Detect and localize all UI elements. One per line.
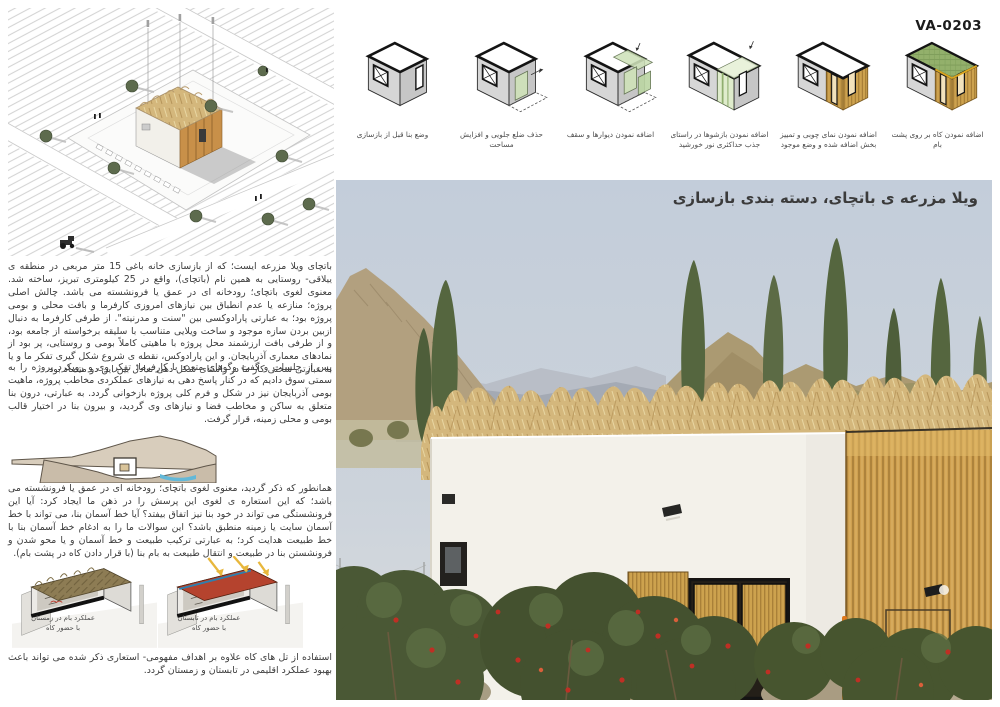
small-vent bbox=[442, 494, 455, 504]
step-2: حذف ضلع جلویی و افزایش مساحت bbox=[447, 36, 556, 174]
step-4: اضافه نمودن بازشوها در راستای جذب حداکثر… bbox=[665, 36, 774, 174]
summer-section-label: عملکرد بام در تابستان با حضور کاه bbox=[166, 614, 252, 633]
roof-section-winter: عملکرد بام در زمستان با حضور کاه bbox=[12, 556, 157, 651]
transformation-steps: وضع بنا قبل از بازسازی حذف ضلع جلویی و ا… bbox=[338, 36, 992, 174]
step-5: اضافه نمودن نمای چوبی و تمییز بخش اضافه … bbox=[774, 36, 883, 174]
terrain-concept-sketch bbox=[10, 408, 220, 483]
step-4-diagram bbox=[668, 36, 772, 124]
step-1: وضع بنا قبل از بازسازی bbox=[338, 36, 447, 174]
step-3-diagram bbox=[559, 36, 663, 124]
step-3-label: اضافه نمودن دیوارها و سقف bbox=[561, 130, 661, 140]
step-2-diagram bbox=[450, 36, 554, 124]
main-photograph: ویلا مزرعه ی باتچای، دسته بندی بازسازی bbox=[336, 180, 992, 700]
presentation-board: VA-0203 bbox=[0, 0, 1000, 707]
step-5-diagram bbox=[777, 36, 881, 124]
winter-section-label: عملکرد بام در زمستان با حضور کاه bbox=[20, 614, 106, 633]
step-1-label: وضع بنا قبل از بازسازی bbox=[343, 130, 443, 140]
step-1-diagram bbox=[341, 36, 445, 124]
photo-title: ویلا مزرعه ی باتچای، دسته بندی بازسازی bbox=[673, 189, 978, 207]
roof-section-summer: عملکرد بام در تابستان با حضور کاه bbox=[158, 556, 303, 651]
step-4-label: اضافه نمودن بازشوها در راستای جذب حداکثر… bbox=[670, 130, 770, 150]
step-6-diagram bbox=[886, 36, 990, 124]
site-axonometric-drawing bbox=[8, 8, 334, 256]
paragraph-concept: همانطور که ذکر گردید، معنوی لغوی باتچای؛… bbox=[8, 483, 332, 560]
photo-illustration bbox=[336, 180, 992, 700]
project-code: VA-0203 bbox=[915, 18, 982, 34]
step-2-label: حذف ضلع جلویی و افزایش مساحت bbox=[452, 130, 552, 150]
paragraph-intro: باتچای ویلا مزرعه ایست؛ که از بازسازی خا… bbox=[8, 261, 332, 377]
paragraph-climate: استفاده از تل های کاه علاوه بر اهداف مفه… bbox=[8, 652, 332, 678]
step-6: اضافه نمودن کاه بر روی پشت بام bbox=[883, 36, 992, 174]
step-5-label: اضافه نمودن نمای چوبی و تمییز بخش اضافه … bbox=[779, 130, 879, 150]
step-6-label: اضافه نمودن کاه بر روی پشت بام bbox=[888, 130, 988, 150]
step-3: اضافه نمودن دیوارها و سقف bbox=[556, 36, 665, 174]
